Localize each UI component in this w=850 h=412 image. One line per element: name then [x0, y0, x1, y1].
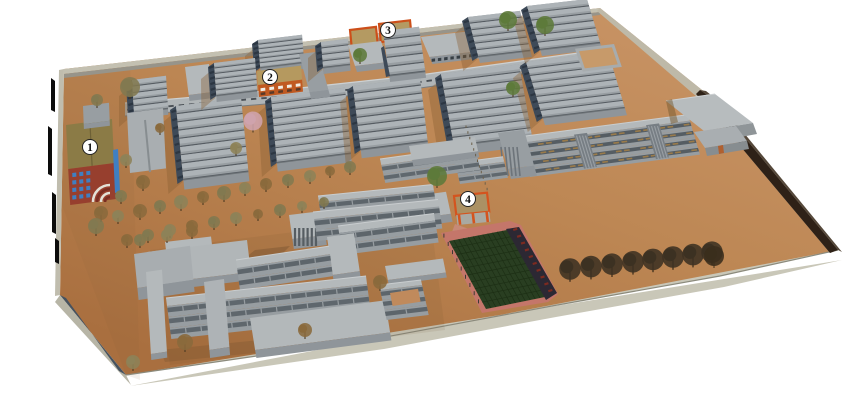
svg-text:1: 1 [87, 142, 93, 154]
svg-text:2: 2 [267, 72, 273, 84]
svg-text:3: 3 [385, 25, 391, 37]
svg-text:4: 4 [465, 194, 471, 206]
